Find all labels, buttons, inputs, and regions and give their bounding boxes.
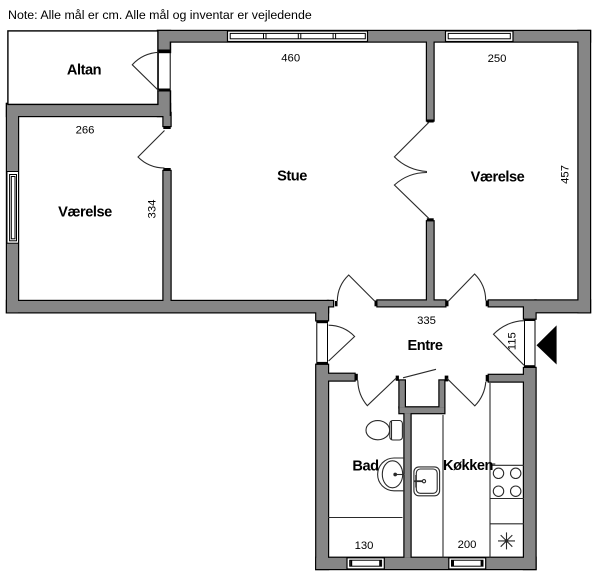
svg-text:115: 115 [506,332,518,350]
svg-text:Altan: Altan [67,63,102,79]
svg-text:Note: Alle mål er cm. Alle mål: Note: Alle mål er cm. Alle mål og invent… [8,8,312,22]
svg-text:130: 130 [355,540,374,552]
svg-text:Bad: Bad [352,458,378,474]
svg-text:Køkken: Køkken [443,458,494,474]
svg-text:250: 250 [488,53,507,65]
svg-text:Værelse: Værelse [471,169,525,185]
svg-text:335: 335 [417,315,436,327]
svg-text:Entre: Entre [407,338,442,354]
svg-text:457: 457 [559,165,571,184]
svg-text:460: 460 [281,52,300,64]
svg-text:Stue: Stue [277,168,307,184]
svg-text:266: 266 [76,124,95,136]
svg-text:200: 200 [458,539,477,551]
svg-text:334: 334 [146,200,158,219]
svg-text:Værelse: Værelse [58,205,112,221]
